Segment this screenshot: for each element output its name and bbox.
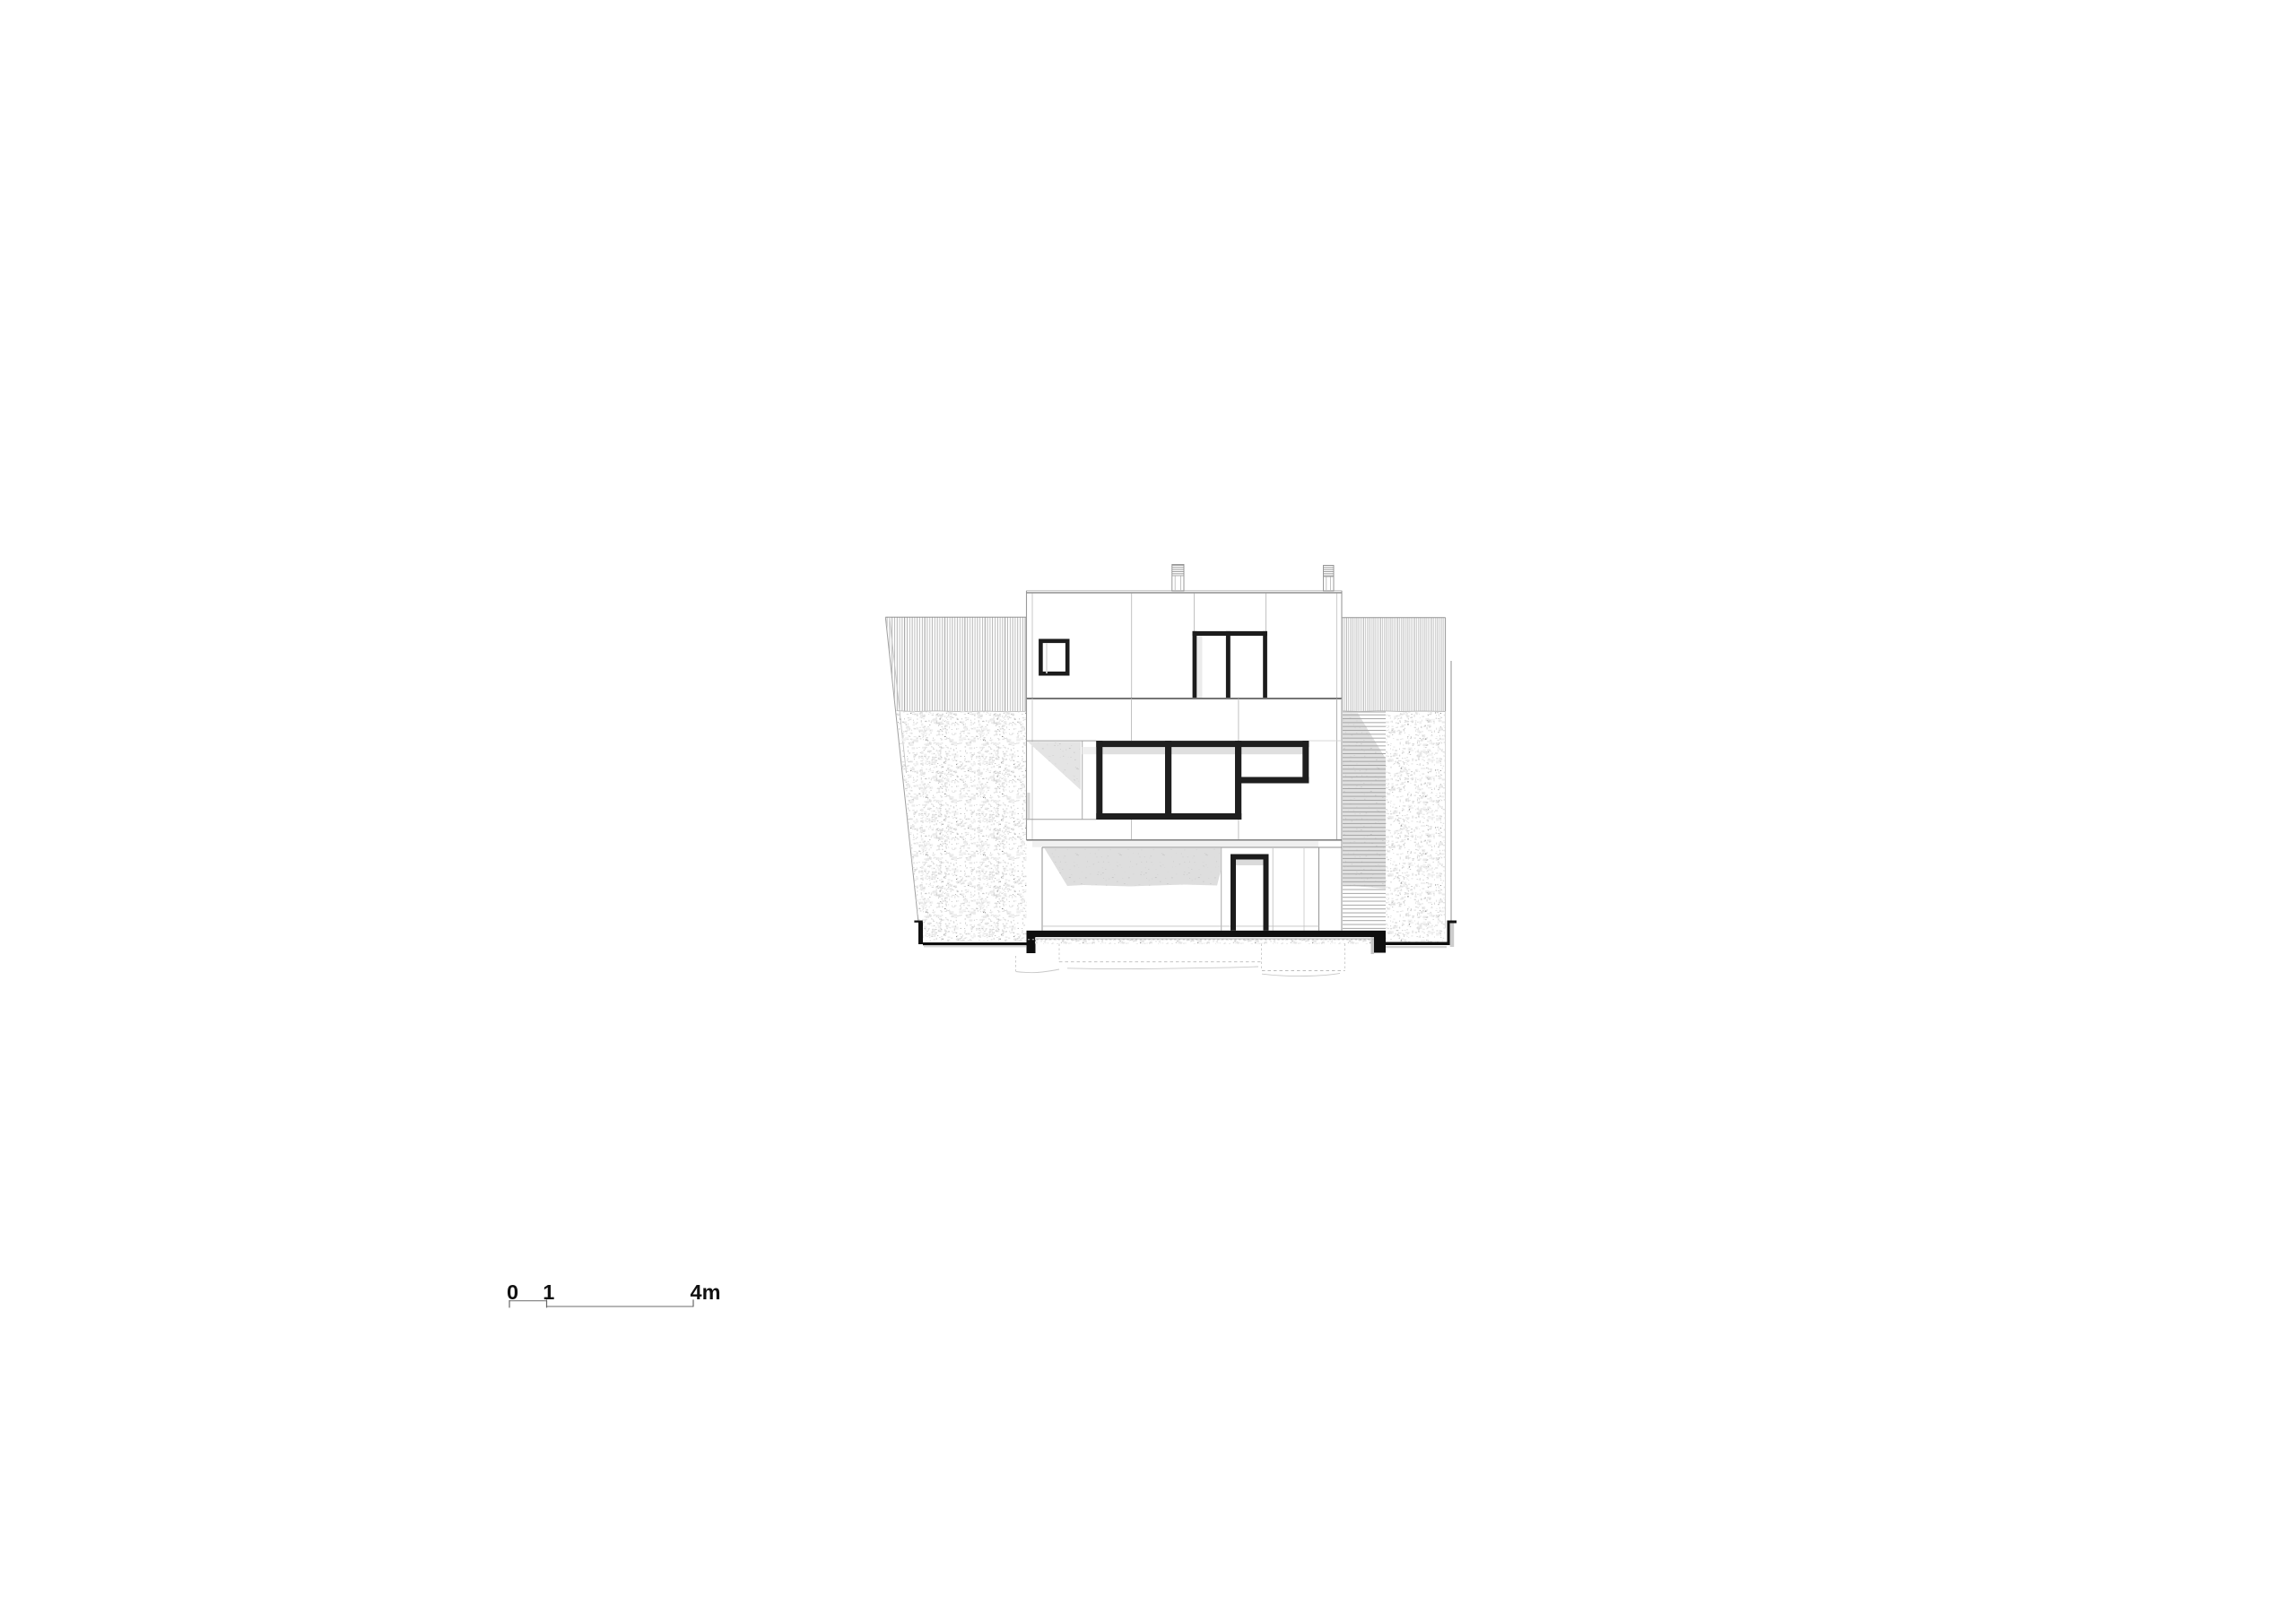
svg-text:1: 1 bbox=[543, 1280, 554, 1304]
svg-text:0: 0 bbox=[507, 1280, 518, 1304]
svg-text:4m: 4m bbox=[691, 1280, 721, 1304]
